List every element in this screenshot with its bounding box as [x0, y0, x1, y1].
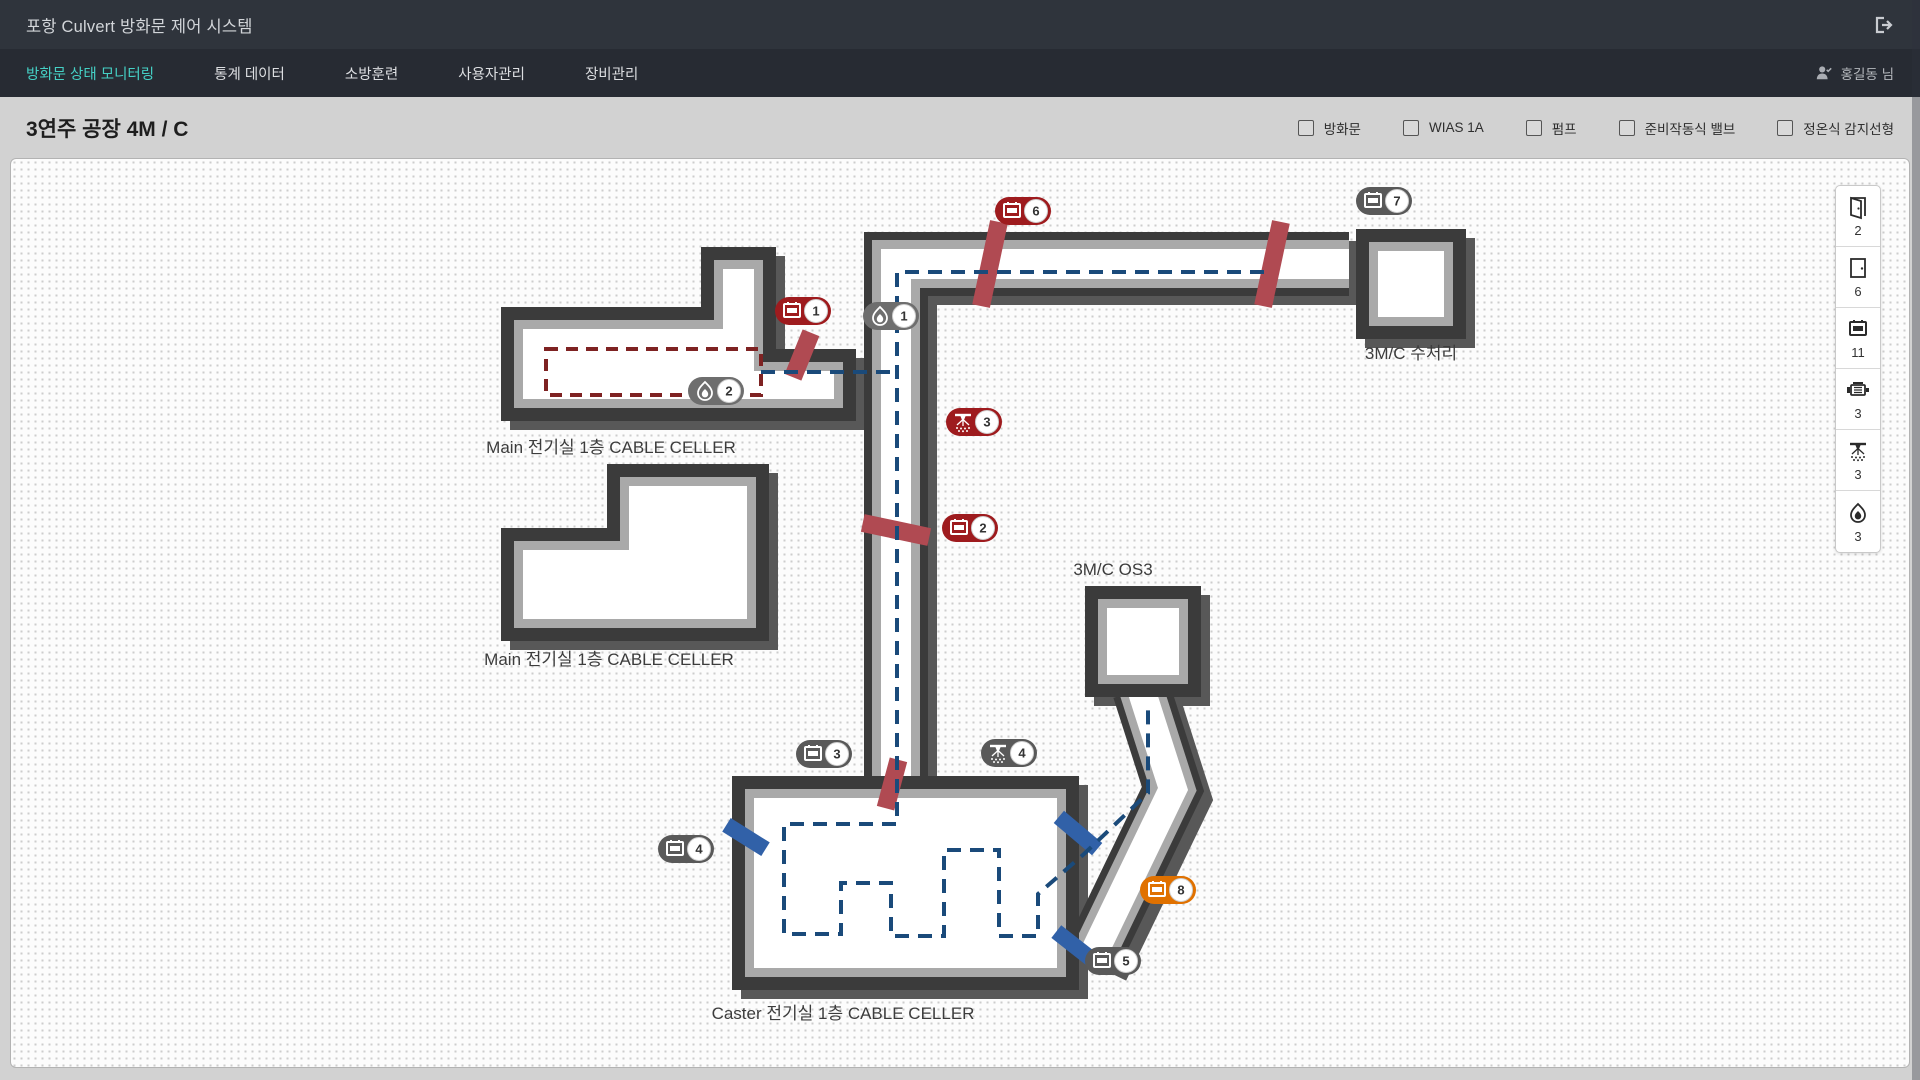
- checkbox[interactable]: [1298, 120, 1314, 136]
- marker-damper-panel-7[interactable]: 7: [1356, 187, 1412, 215]
- marker-number: 3: [983, 415, 990, 430]
- marker-damper-panel-6[interactable]: 6: [995, 197, 1051, 225]
- marker-number: 8: [1177, 883, 1184, 898]
- checkbox[interactable]: [1777, 120, 1793, 136]
- room-3mc-suchuri: [1356, 229, 1466, 339]
- legend-count: 11: [1851, 345, 1865, 360]
- facility-map: Main 전기실 1층 CABLE CELLERMain 전기실 1층 CABL…: [11, 159, 1909, 1067]
- legend-sidebar: 2 6 11 3 3 3: [1835, 185, 1881, 553]
- legend-item-flame[interactable]: 3: [1836, 491, 1880, 552]
- marker-number: 4: [695, 842, 703, 857]
- marker-flame-1[interactable]: 1: [863, 302, 919, 330]
- marker-number: 1: [900, 309, 907, 324]
- logout-icon[interactable]: [1872, 14, 1894, 36]
- filter-label: 정온식 감지선형: [1803, 118, 1894, 138]
- nav-tabs: 방화문 상태 모니터링통계 데이터소방훈련사용자관리장비관리: [26, 63, 638, 84]
- marker-damper-panel-2[interactable]: 2: [942, 514, 998, 542]
- room-3mc-os3: [1085, 586, 1201, 697]
- marker-flame-2[interactable]: 2: [688, 377, 744, 405]
- map-label: Main 전기실 1층 CABLE CELLER: [484, 650, 734, 669]
- door-open-icon: [1845, 194, 1871, 220]
- nav-bar: 방화문 상태 모니터링통계 데이터소방훈련사용자관리장비관리 홍길동 님: [0, 49, 1920, 97]
- room-main-cable-celler-2: [501, 464, 769, 641]
- filter-1[interactable]: WIAS 1A: [1403, 120, 1484, 136]
- flame-icon: [1845, 500, 1871, 526]
- filter-row: 방화문WIAS 1A펌프준비작동식 밸브정온식 감지선형: [1298, 118, 1894, 138]
- nav-tab-4[interactable]: 장비관리: [585, 63, 638, 84]
- page-title: 3연주 공장 4M / C: [26, 113, 188, 143]
- door-closed-icon: [1845, 255, 1871, 281]
- marker-damper-panel-8[interactable]: 8: [1140, 876, 1196, 904]
- marker-damper-panel-3[interactable]: 3: [796, 740, 852, 768]
- nav-tab-1[interactable]: 통계 데이터: [214, 63, 285, 84]
- sprinkler-icon: [1845, 438, 1871, 464]
- corridor-diagonal: [1091, 689, 1173, 959]
- legend-item-damper-panel[interactable]: 11: [1836, 308, 1880, 369]
- marker-number: 7: [1393, 194, 1400, 209]
- legend-count: 6: [1854, 284, 1861, 299]
- filter-2[interactable]: 펌프: [1526, 118, 1577, 138]
- legend-count: 2: [1854, 223, 1861, 238]
- scrollbar[interactable]: [1912, 0, 1920, 1080]
- nav-user[interactable]: 홍길동 님: [1815, 63, 1894, 83]
- legend-item-sprinkler[interactable]: 3: [1836, 430, 1880, 491]
- app-title: 포항 Culvert 방화문 제어 시스템: [26, 13, 253, 37]
- legend-count: 3: [1854, 406, 1861, 421]
- filter-3[interactable]: 준비작동식 밸브: [1619, 118, 1736, 138]
- user-check-icon: [1815, 64, 1833, 82]
- marker-damper-panel-1[interactable]: 1: [775, 297, 831, 325]
- legend-item-door-closed[interactable]: 6: [1836, 247, 1880, 308]
- marker-number: 4: [1018, 746, 1026, 761]
- marker-damper-panel-5[interactable]: 5: [1085, 947, 1141, 975]
- marker-number: 2: [725, 384, 732, 399]
- legend-count: 3: [1854, 529, 1861, 544]
- pump-icon: [1845, 377, 1871, 403]
- checkbox[interactable]: [1526, 120, 1542, 136]
- marker-number: 6: [1032, 204, 1039, 219]
- nav-tab-2[interactable]: 소방훈련: [345, 63, 398, 84]
- marker-damper-panel-4[interactable]: 4: [658, 835, 714, 863]
- map-label: 3M/C OS3: [1073, 560, 1152, 579]
- legend-item-door-open[interactable]: 2: [1836, 186, 1880, 247]
- marker-number: 5: [1122, 954, 1129, 969]
- nav-user-name: 홍길동 님: [1841, 63, 1894, 83]
- filter-label: 준비작동식 밸브: [1645, 118, 1736, 138]
- damper-panel-icon: [1845, 316, 1871, 342]
- facility-map-panel: Main 전기실 1층 CABLE CELLERMain 전기실 1층 CABL…: [10, 158, 1910, 1068]
- map-label: 3M/C 수처리: [1365, 344, 1457, 363]
- marker-number: 2: [979, 521, 986, 536]
- checkbox[interactable]: [1403, 120, 1419, 136]
- filter-label: WIAS 1A: [1429, 120, 1484, 135]
- map-label: Main 전기실 1층 CABLE CELLER: [486, 438, 736, 457]
- nav-tab-3[interactable]: 사용자관리: [458, 63, 525, 84]
- marker-sprinkler-3[interactable]: 3: [946, 408, 1002, 436]
- marker-number: 1: [812, 304, 819, 319]
- legend-count: 3: [1854, 467, 1861, 482]
- nav-tab-0[interactable]: 방화문 상태 모니터링: [26, 63, 154, 84]
- map-label: Caster 전기실 1층 CABLE CELLER: [712, 1004, 975, 1023]
- marker-number: 3: [833, 747, 840, 762]
- filter-4[interactable]: 정온식 감지선형: [1777, 118, 1894, 138]
- marker-sprinkler-4[interactable]: 4: [981, 739, 1037, 767]
- filter-label: 방화문: [1324, 118, 1361, 138]
- legend-item-pump[interactable]: 3: [1836, 369, 1880, 430]
- top-bar: 포항 Culvert 방화문 제어 시스템: [0, 0, 1920, 49]
- filter-0[interactable]: 방화문: [1298, 118, 1361, 138]
- filter-label: 펌프: [1552, 118, 1577, 138]
- page-header: 3연주 공장 4M / C 방화문WIAS 1A펌프준비작동식 밸브정온식 감지…: [0, 97, 1920, 158]
- checkbox[interactable]: [1619, 120, 1635, 136]
